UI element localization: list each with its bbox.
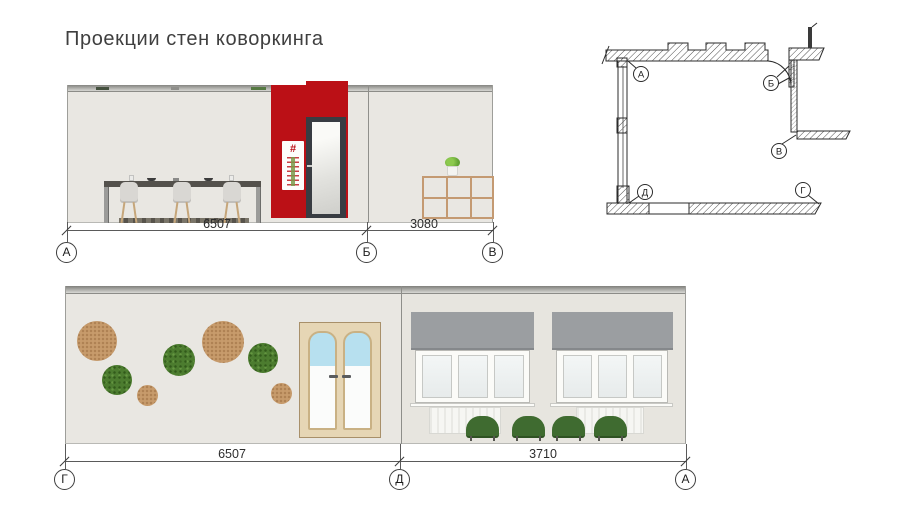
table-item (229, 175, 234, 181)
dimension-value: 3080 (394, 217, 454, 231)
grid-line-b (368, 85, 369, 223)
plan-marker-label: Г (800, 186, 805, 197)
door-handle (307, 165, 312, 167)
poster-symbol: # (282, 143, 304, 155)
chair (594, 416, 627, 438)
moss-panel (163, 344, 195, 376)
poster-text-lines (287, 157, 299, 186)
extension-line (67, 222, 68, 242)
table-leg (256, 187, 261, 223)
plan-marker-label: Д (642, 188, 649, 199)
grid-line-d (401, 286, 402, 444)
extension-line (400, 444, 401, 469)
plan-column (808, 27, 812, 48)
leader-line (782, 135, 796, 144)
floor-plan: А Б В Д Г (595, 20, 865, 225)
cork-panel (137, 385, 158, 406)
ceiling-fixture (96, 87, 109, 90)
moss-panel (102, 365, 132, 395)
plan-right-wall (791, 60, 797, 132)
axis-marker-a: А (56, 242, 77, 263)
table-item (129, 175, 134, 181)
axis-marker-b: Б (356, 242, 377, 263)
plan-right-horizontal-wall (797, 131, 850, 139)
plan-pier (617, 58, 627, 67)
double-door (299, 322, 381, 438)
door-leaf-glass (308, 331, 337, 430)
cork-panel (271, 383, 292, 404)
plan-marker-label: Б (768, 79, 774, 90)
plan-pier (617, 186, 629, 203)
roller-blind (552, 312, 673, 350)
stool (116, 182, 142, 223)
extension-line (493, 222, 494, 242)
leader-line (628, 61, 636, 68)
cube-shelf (422, 176, 494, 219)
plan-marker-label: В (776, 147, 782, 158)
elevation-bottom (65, 286, 686, 444)
axis-marker-d: Д (389, 469, 410, 490)
dimension-line (65, 461, 686, 462)
extension-line (686, 444, 687, 469)
chair (552, 416, 585, 438)
dimension-value: 3710 (513, 447, 573, 461)
door-handle (329, 375, 338, 378)
chair (466, 416, 499, 438)
dimension-value: 6507 (202, 447, 262, 461)
axis-marker-g: Г (54, 469, 75, 490)
elevation-top: # (67, 85, 493, 223)
plan-opening (649, 203, 689, 214)
cork-panel (202, 321, 244, 363)
extension-line (367, 222, 368, 242)
window (415, 350, 530, 403)
door-leaf-glass (343, 331, 372, 430)
door-glass (312, 122, 340, 214)
table-item (173, 178, 179, 181)
page-title: Проекции стен коворкинга (65, 28, 324, 51)
window (556, 350, 668, 403)
ceiling-fixture (171, 87, 179, 90)
ceiling-fixture (251, 87, 266, 90)
ceiling-trim (66, 286, 685, 294)
slide: Проекции стен коворкинга # (0, 0, 900, 506)
plan-bottom-wall (607, 203, 821, 214)
axis-marker-v: В (482, 242, 503, 263)
plan-top-wall (606, 43, 768, 61)
moss-panel (248, 343, 278, 373)
plan-top-right-wall (789, 48, 824, 60)
chair (512, 416, 545, 438)
table-leg (104, 187, 109, 223)
roller-blind (411, 312, 534, 350)
extension-line (65, 444, 66, 469)
axis-marker-a: А (675, 469, 696, 490)
cork-panel (77, 321, 117, 361)
plan-marker-label: А (638, 70, 645, 81)
plant-pot (447, 166, 458, 176)
plan-pier (617, 118, 627, 133)
wall-poster: # (282, 141, 304, 190)
leader-line (778, 78, 789, 84)
entrance-door (306, 117, 346, 218)
dimension-value: 6507 (187, 217, 247, 231)
leader-line (629, 196, 639, 203)
door-handle (342, 375, 351, 378)
